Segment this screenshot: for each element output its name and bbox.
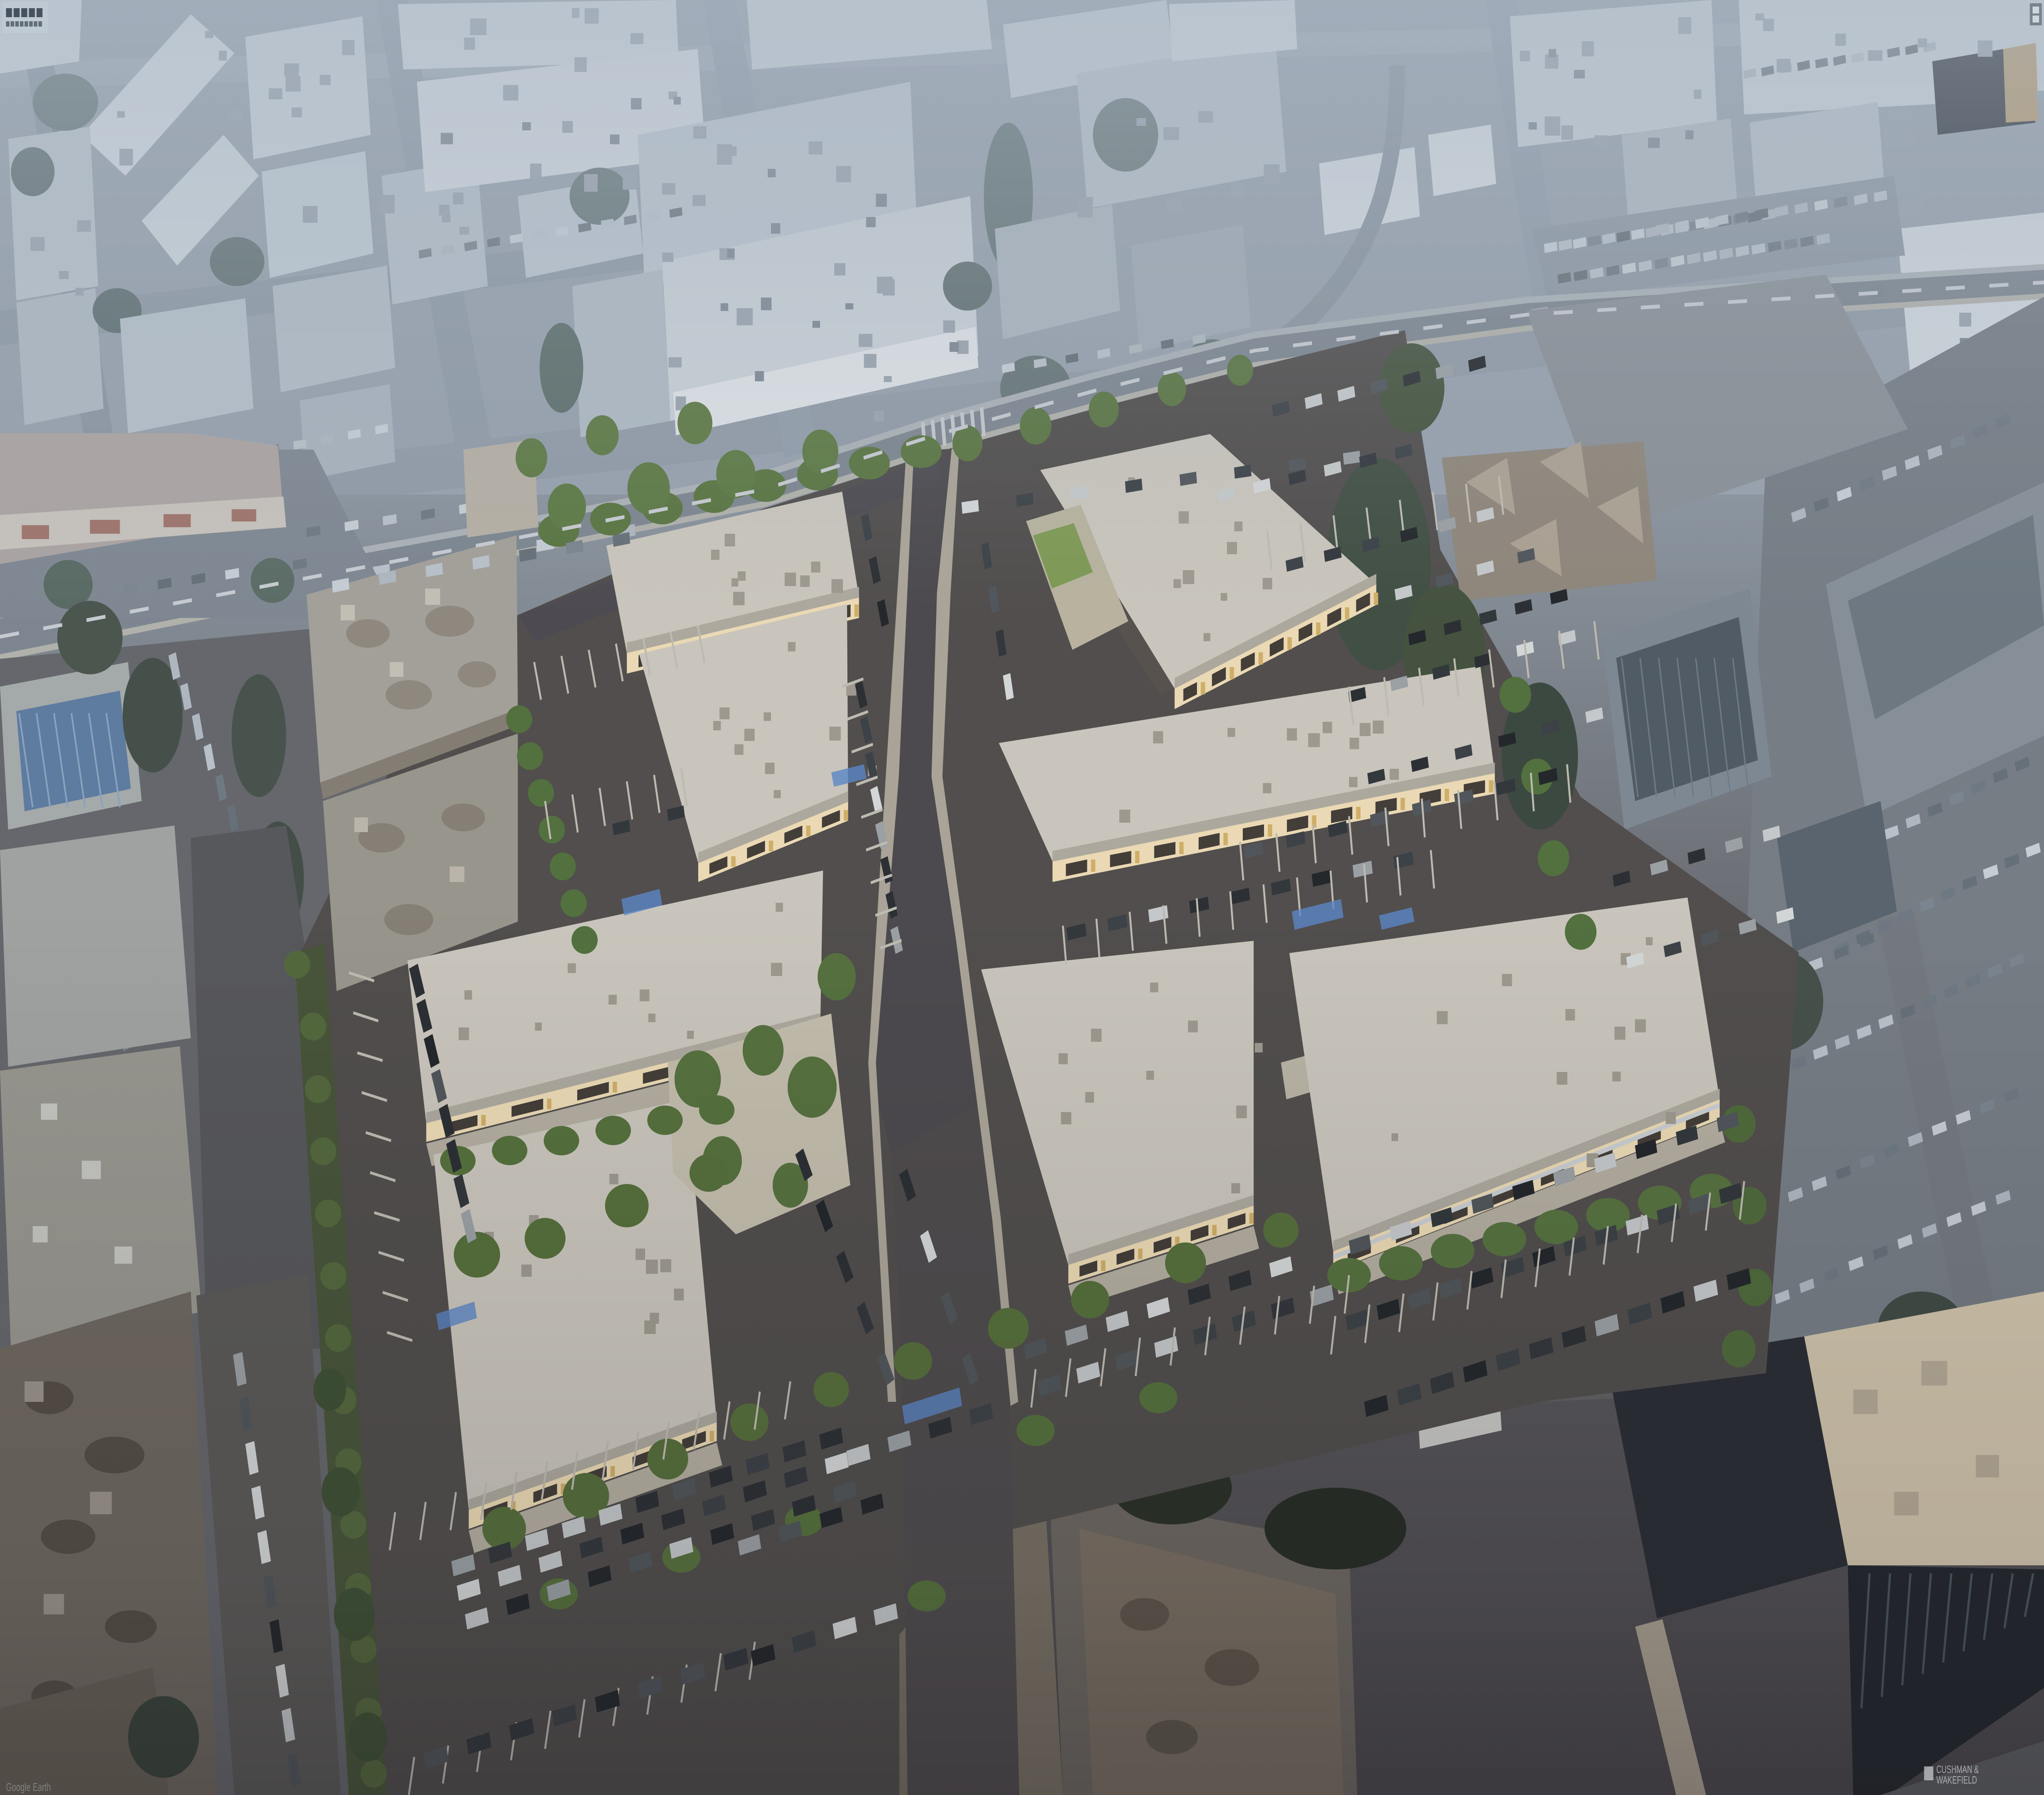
svg-text:WAKEFIELD: WAKEFIELD [1936,1774,1977,1786]
svg-text:Google Earth: Google Earth [6,1781,51,1794]
